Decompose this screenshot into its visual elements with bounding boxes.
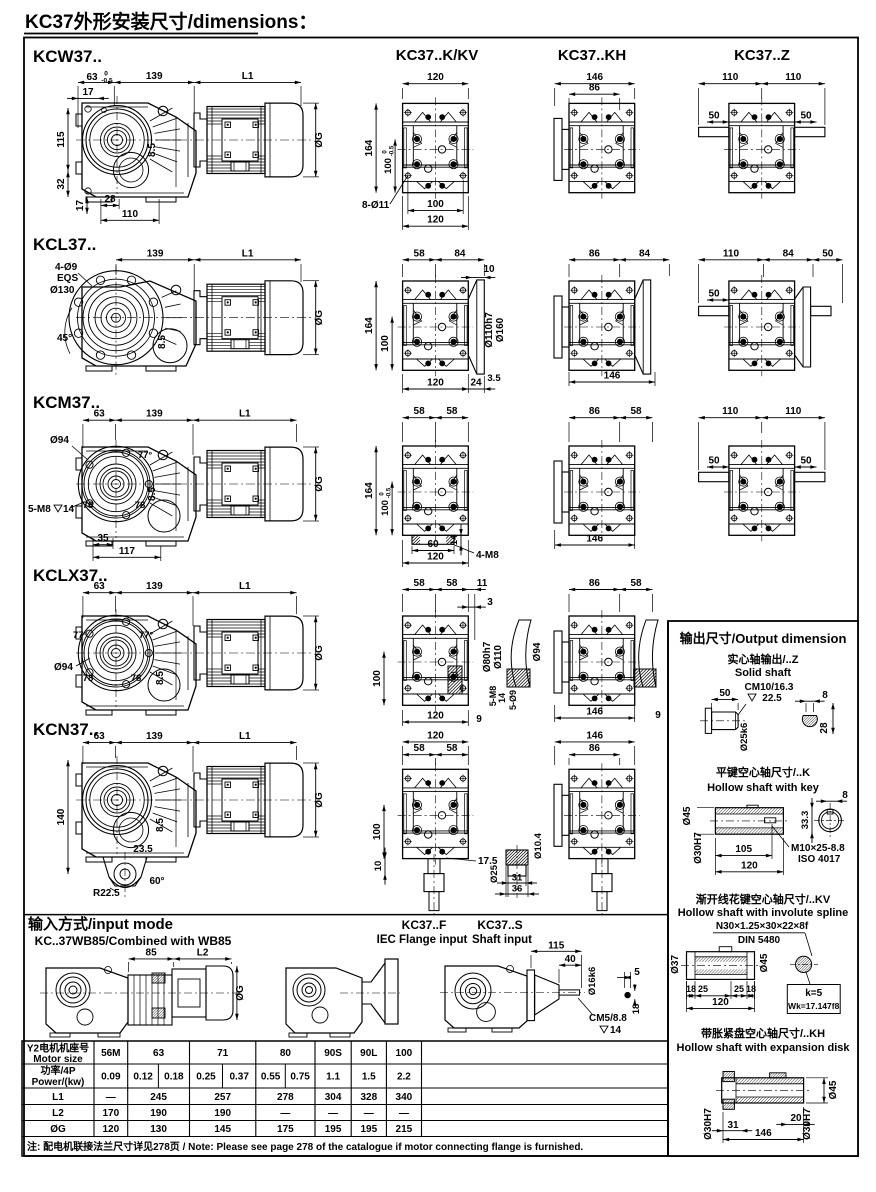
svg-text:14: 14 — [63, 504, 75, 515]
svg-text:77°: 77° — [73, 630, 88, 641]
svg-text:L1: L1 — [239, 581, 251, 592]
svg-text:Ø110: Ø110 — [493, 645, 504, 669]
svg-text:Ø80h7: Ø80h7 — [482, 641, 493, 672]
svg-text:278: 278 — [277, 1092, 294, 1103]
svg-text:1.5: 1.5 — [362, 1072, 376, 1083]
svg-text:170: 170 — [102, 1108, 119, 1119]
svg-text:0.55: 0.55 — [261, 1072, 281, 1083]
svg-text:0.75: 0.75 — [290, 1072, 310, 1083]
svg-text:Ø45: Ø45 — [682, 806, 693, 825]
svg-text:105: 105 — [735, 844, 752, 855]
svg-text:Power/(kw): Power/(kw) — [32, 1077, 85, 1088]
svg-text:77°: 77° — [139, 630, 154, 641]
svg-text:110: 110 — [723, 248, 740, 259]
svg-text:78: 78 — [83, 500, 94, 511]
svg-text:100: 100 — [380, 500, 391, 516]
svg-text:Ø25k6: Ø25k6 — [739, 723, 750, 752]
svg-text:8.5: 8.5 — [157, 335, 168, 349]
svg-text:33.3: 33.3 — [800, 811, 811, 830]
svg-text:24: 24 — [470, 378, 482, 389]
svg-text:4-M8: 4-M8 — [476, 550, 499, 561]
svg-text:Ø10.4: Ø10.4 — [533, 832, 544, 859]
svg-text:50: 50 — [708, 111, 720, 122]
svg-text:8.5: 8.5 — [155, 818, 166, 832]
svg-text:146: 146 — [586, 707, 603, 718]
svg-text:CM5/8.8: CM5/8.8 — [589, 1013, 627, 1024]
svg-text:90L: 90L — [360, 1048, 377, 1059]
svg-text:0.37: 0.37 — [229, 1072, 249, 1083]
svg-text:340: 340 — [396, 1092, 413, 1103]
svg-text:2.2: 2.2 — [397, 1072, 411, 1083]
svg-text:20: 20 — [790, 1113, 802, 1124]
svg-text:17: 17 — [82, 87, 94, 98]
svg-text:50: 50 — [800, 456, 812, 467]
svg-text:L1: L1 — [52, 1092, 64, 1103]
svg-text:实心轴输出/..Z: 实心轴输出/..Z — [728, 652, 799, 666]
svg-text:86: 86 — [589, 743, 601, 754]
svg-text:63: 63 — [94, 581, 106, 592]
svg-text:EQS: EQS — [57, 273, 78, 284]
svg-text:KCM37..: KCM37.. — [33, 393, 100, 412]
svg-text:14: 14 — [610, 1025, 622, 1036]
svg-text:Wk=17.147f8: Wk=17.147f8 — [788, 1001, 840, 1011]
svg-text:KC37..F: KC37..F — [402, 918, 447, 932]
svg-text:3: 3 — [487, 597, 493, 608]
svg-text:14: 14 — [449, 534, 460, 545]
svg-text:Ø45: Ø45 — [759, 953, 770, 972]
svg-text:58: 58 — [414, 406, 426, 417]
svg-text:58: 58 — [630, 578, 642, 589]
svg-text:Y2电机机座号: Y2电机机座号 — [27, 1042, 89, 1055]
svg-text:100: 100 — [380, 335, 391, 352]
svg-text:0.09: 0.09 — [101, 1072, 121, 1083]
svg-text:KCL37..: KCL37.. — [33, 235, 96, 254]
svg-text:Ø94: Ø94 — [532, 642, 543, 661]
svg-text:164: 164 — [364, 139, 375, 156]
svg-text:215: 215 — [396, 1124, 413, 1135]
svg-text:输入方式/input mode: 输入方式/input mode — [28, 915, 173, 933]
svg-text:Ø16k6: Ø16k6 — [587, 967, 598, 996]
svg-text:—: — — [364, 1108, 374, 1119]
svg-text:58: 58 — [446, 578, 458, 589]
svg-text:Solid shaft: Solid shaft — [735, 667, 792, 679]
svg-text:ØG: ØG — [314, 310, 325, 326]
svg-text:100: 100 — [396, 1048, 413, 1059]
svg-text:—: — — [328, 1108, 338, 1119]
svg-text:CM10/16.3: CM10/16.3 — [745, 682, 794, 693]
svg-text:—: — — [280, 1108, 290, 1119]
svg-text:257: 257 — [214, 1092, 231, 1103]
svg-text:100: 100 — [383, 158, 394, 174]
svg-text:100: 100 — [372, 823, 383, 840]
svg-text:Ø110h7: Ø110h7 — [484, 312, 495, 348]
svg-text:L1: L1 — [239, 409, 251, 420]
svg-text:32: 32 — [56, 178, 67, 190]
svg-text:90S: 90S — [324, 1048, 342, 1059]
svg-text:KC37..KH: KC37..KH — [558, 47, 626, 64]
svg-text:ISO 4017: ISO 4017 — [798, 854, 841, 865]
svg-text:KC..37WB85/Combined with WB85: KC..37WB85/Combined with WB85 — [35, 934, 232, 948]
svg-text:8.5: 8.5 — [147, 487, 158, 501]
svg-text:-0.5: -0.5 — [387, 487, 393, 498]
svg-text:ØG: ØG — [314, 792, 325, 808]
svg-text:0.12: 0.12 — [133, 1072, 153, 1083]
svg-text:ØG: ØG — [235, 985, 246, 1001]
svg-text:130: 130 — [150, 1124, 167, 1135]
svg-text:86: 86 — [589, 83, 601, 94]
svg-text:63: 63 — [86, 72, 98, 83]
svg-text:164: 164 — [364, 317, 375, 334]
svg-text:195: 195 — [325, 1124, 342, 1135]
svg-text:Hollow shaft with key: Hollow shaft with key — [707, 782, 820, 794]
svg-text:146: 146 — [755, 1128, 772, 1139]
svg-text:78: 78 — [83, 673, 94, 684]
svg-text:110: 110 — [785, 406, 802, 417]
svg-text:KC37..K/KV: KC37..K/KV — [396, 47, 479, 64]
svg-text:164: 164 — [364, 482, 375, 499]
svg-text:110: 110 — [785, 72, 802, 83]
svg-text:5-Ø9: 5-Ø9 — [508, 690, 518, 710]
svg-text:50: 50 — [719, 688, 731, 699]
svg-text:78: 78 — [135, 500, 146, 511]
svg-text:40: 40 — [565, 954, 577, 965]
svg-text:145: 145 — [214, 1124, 231, 1135]
svg-text:77°: 77° — [138, 450, 153, 461]
svg-text:139: 139 — [147, 248, 164, 259]
svg-text:50: 50 — [822, 248, 834, 259]
svg-text:N30×1.25×30×22×8f: N30×1.25×30×22×8f — [716, 921, 809, 932]
svg-text:注: 配电机联接法兰尺寸详见278页 / Note: Ple: 注: 配电机联接法兰尺寸详见278页 / Note: Please see pa… — [27, 1140, 583, 1153]
svg-text:25: 25 — [698, 984, 708, 994]
svg-text:k=5: k=5 — [805, 988, 822, 999]
svg-text:3.5: 3.5 — [487, 373, 501, 384]
svg-text:71: 71 — [217, 1048, 229, 1059]
svg-text:117: 117 — [119, 546, 136, 557]
svg-text:304: 304 — [325, 1092, 342, 1103]
svg-text:Hollow shaft with involute spl: Hollow shaft with involute spline — [678, 907, 849, 919]
svg-text:10: 10 — [373, 861, 384, 872]
svg-text:36: 36 — [512, 884, 523, 895]
svg-text:渐开线花键空心轴尺寸/..KV: 渐开线花键空心轴尺寸/..KV — [696, 892, 831, 906]
svg-text:80: 80 — [280, 1048, 292, 1059]
svg-text:60°: 60° — [149, 876, 164, 887]
svg-text:328: 328 — [360, 1092, 377, 1103]
svg-text:120: 120 — [427, 378, 444, 389]
svg-text:—: — — [106, 1092, 116, 1103]
svg-text:190: 190 — [150, 1108, 167, 1119]
svg-text:L2: L2 — [197, 947, 209, 958]
svg-text:86: 86 — [589, 406, 601, 417]
svg-text:0: 0 — [104, 71, 108, 78]
svg-text:120: 120 — [741, 860, 758, 871]
svg-text:110: 110 — [122, 209, 139, 220]
svg-text:R22.5: R22.5 — [93, 888, 120, 899]
svg-text:190: 190 — [214, 1108, 231, 1119]
svg-text:Hollow shaft with expansion di: Hollow shaft with expansion disk — [677, 1042, 851, 1054]
svg-text:ØG: ØG — [314, 132, 325, 148]
svg-text:139: 139 — [146, 71, 163, 82]
svg-text:L2: L2 — [52, 1108, 64, 1119]
svg-text:56M: 56M — [101, 1048, 120, 1059]
svg-text:Ø37: Ø37 — [670, 955, 681, 974]
svg-text:63: 63 — [94, 409, 106, 420]
svg-text:35: 35 — [97, 533, 109, 544]
svg-text:58: 58 — [446, 743, 458, 754]
svg-text:23.5: 23.5 — [133, 844, 153, 855]
svg-text:L1: L1 — [242, 248, 254, 259]
svg-text:120: 120 — [427, 215, 444, 226]
svg-text:14: 14 — [497, 693, 507, 703]
svg-text:245: 245 — [150, 1092, 167, 1103]
svg-text:-0.5: -0.5 — [390, 145, 396, 156]
svg-text:L1: L1 — [239, 731, 251, 742]
svg-text:ØG: ØG — [50, 1124, 66, 1135]
svg-text:—: — — [399, 1108, 409, 1119]
svg-text:120: 120 — [712, 997, 729, 1008]
svg-text:22.5: 22.5 — [762, 693, 782, 704]
svg-text:86: 86 — [589, 578, 601, 589]
svg-text:KCW37..: KCW37.. — [33, 47, 102, 66]
svg-text:31: 31 — [512, 873, 523, 884]
svg-text:28: 28 — [819, 722, 830, 734]
svg-text:Ø94: Ø94 — [54, 662, 73, 673]
svg-text:63: 63 — [94, 731, 106, 742]
svg-text:Ø30H7: Ø30H7 — [703, 1108, 714, 1140]
svg-text:0.18: 0.18 — [164, 1072, 184, 1083]
svg-text:63: 63 — [153, 1048, 165, 1059]
svg-text:10: 10 — [483, 264, 495, 275]
svg-text:110: 110 — [722, 72, 739, 83]
svg-text:50: 50 — [800, 111, 812, 122]
svg-text:M10×25-8.8: M10×25-8.8 — [791, 843, 845, 854]
svg-text:4-Ø9: 4-Ø9 — [55, 262, 78, 273]
svg-text:58: 58 — [630, 406, 642, 417]
svg-text:Ø94: Ø94 — [50, 435, 69, 446]
svg-text:146: 146 — [586, 72, 603, 83]
svg-text:Shaft input: Shaft input — [472, 934, 532, 946]
svg-text:146: 146 — [586, 730, 603, 741]
svg-text:8.5: 8.5 — [155, 671, 166, 685]
svg-text:输出尺寸/Output dimension: 输出尺寸/Output dimension — [680, 631, 847, 646]
svg-text:84: 84 — [454, 248, 466, 259]
svg-text:120: 120 — [427, 711, 444, 722]
svg-text:IEC Flange input: IEC Flange input — [377, 934, 468, 946]
svg-text:ØG: ØG — [314, 476, 325, 492]
svg-text:功率/4P: 功率/4P — [40, 1064, 75, 1077]
svg-text:175: 175 — [277, 1124, 294, 1135]
svg-text:8: 8 — [822, 690, 828, 701]
svg-text:58: 58 — [414, 248, 426, 259]
svg-text:31: 31 — [727, 1120, 739, 1131]
svg-text:8-Ø11: 8-Ø11 — [362, 200, 390, 211]
svg-text:17: 17 — [75, 200, 86, 212]
svg-text:平键空心轴尺寸/..K: 平键空心轴尺寸/..K — [716, 765, 810, 779]
svg-text:Motor size: Motor size — [33, 1054, 83, 1065]
svg-text:139: 139 — [146, 581, 163, 592]
svg-text:9: 9 — [655, 710, 661, 721]
svg-text:18: 18 — [686, 984, 696, 994]
svg-text:KC37外形安装尺寸/dimensions：: KC37外形安装尺寸/dimensions： — [25, 10, 317, 33]
svg-text:84: 84 — [783, 248, 795, 259]
svg-text:Ø130: Ø130 — [50, 285, 75, 296]
svg-text:25: 25 — [734, 984, 744, 994]
svg-text:1.1: 1.1 — [326, 1072, 340, 1083]
svg-text:139: 139 — [146, 409, 163, 420]
svg-text:28: 28 — [104, 194, 116, 205]
svg-text:Ø160: Ø160 — [495, 317, 506, 342]
svg-text:85: 85 — [146, 947, 158, 958]
svg-text:146: 146 — [586, 534, 603, 545]
svg-text:KC37..S: KC37..S — [477, 918, 522, 932]
svg-text:110: 110 — [722, 406, 739, 417]
svg-text:120: 120 — [427, 72, 444, 83]
svg-text:8: 8 — [842, 790, 848, 801]
svg-text:115: 115 — [56, 131, 67, 148]
svg-text:5-M8: 5-M8 — [28, 504, 51, 515]
svg-text:195: 195 — [360, 1124, 377, 1135]
svg-text:146: 146 — [604, 371, 621, 382]
svg-text:Ø25: Ø25 — [489, 864, 500, 883]
svg-text:100: 100 — [372, 670, 383, 687]
svg-text:58: 58 — [446, 406, 458, 417]
svg-text:50: 50 — [708, 456, 720, 467]
svg-text:50: 50 — [708, 289, 720, 300]
svg-text:L1: L1 — [242, 71, 254, 82]
svg-text:120: 120 — [102, 1124, 119, 1135]
svg-text:120: 120 — [427, 552, 444, 563]
svg-text:58: 58 — [414, 743, 426, 754]
svg-text:DIN 5480: DIN 5480 — [738, 935, 781, 946]
svg-text:86: 86 — [589, 248, 601, 259]
svg-text:Ø45: Ø45 — [828, 1080, 839, 1099]
svg-text:-0.5: -0.5 — [101, 78, 113, 85]
svg-text:11: 11 — [477, 578, 488, 589]
svg-text:78: 78 — [131, 673, 142, 684]
svg-text:120: 120 — [427, 730, 444, 741]
svg-text:9: 9 — [476, 714, 482, 725]
svg-text:KCN37..: KCN37.. — [33, 720, 98, 739]
svg-text:0.25: 0.25 — [196, 1072, 216, 1083]
svg-text:115: 115 — [548, 940, 565, 951]
svg-text:60: 60 — [427, 539, 439, 550]
svg-text:84: 84 — [639, 248, 651, 259]
svg-text:58: 58 — [414, 578, 426, 589]
svg-text:139: 139 — [146, 731, 163, 742]
svg-text:8.5: 8.5 — [147, 143, 158, 157]
svg-text:18: 18 — [631, 1004, 642, 1015]
svg-text:KC37..Z: KC37..Z — [734, 47, 790, 64]
svg-text:140: 140 — [56, 808, 67, 825]
svg-text:带胀紧盘空心轴尺寸/..KH: 带胀紧盘空心轴尺寸/..KH — [701, 1026, 825, 1040]
svg-text:5: 5 — [634, 967, 640, 978]
svg-text:ØG: ØG — [314, 645, 325, 661]
svg-text:Ø30H7: Ø30H7 — [693, 832, 704, 864]
svg-text:100: 100 — [427, 199, 444, 210]
